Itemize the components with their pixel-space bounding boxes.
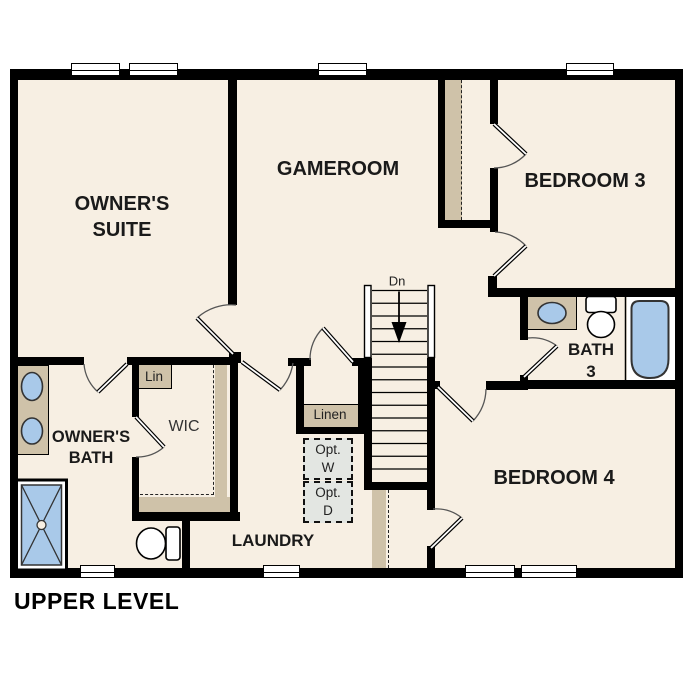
closet-label-linen: Linen: [313, 406, 346, 424]
stairs-down-label: Dn: [389, 274, 406, 289]
washer-label-line: Opt.: [315, 441, 341, 459]
room-label-gameroom: GAMEROOM: [277, 156, 399, 182]
room-label-bedroom-3: BEDROOM 3: [524, 168, 645, 194]
vanity-sink-icon: [22, 373, 43, 445]
door-owners-bath: [84, 364, 127, 392]
optional-dryer-label: Opt. D: [315, 484, 341, 520]
toilet-icon: [586, 297, 616, 338]
shower-icon: [17, 480, 67, 570]
dryer-label-line: Opt.: [315, 484, 341, 502]
room-label-line: BATH: [568, 339, 614, 361]
bath3-sink-icon: [538, 303, 566, 324]
door-bedroom3-upper: [494, 124, 526, 168]
room-label-line: 3: [568, 361, 614, 383]
room-label-line: SUITE: [75, 217, 170, 243]
door-hall: [242, 362, 293, 390]
door-bath3: [524, 338, 557, 377]
room-label-line: OWNER'S: [75, 191, 170, 217]
door-bedroom4: [438, 387, 486, 421]
room-label-owners-bath: OWNER'S BATH: [52, 427, 130, 469]
page-title: UPPER LEVEL: [14, 588, 179, 615]
stairs-down-arrow: [392, 292, 407, 344]
room-label-owners-suite: OWNER'S SUITE: [75, 191, 170, 243]
stair-rail: [428, 286, 435, 358]
stairs: [365, 286, 435, 470]
room-label-bedroom-4: BEDROOM 4: [493, 465, 614, 491]
door-bedroom4-closet: [431, 509, 462, 548]
washer-label-line: W: [315, 459, 341, 477]
room-label-bath-3: BATH 3: [568, 339, 614, 383]
bathtub-icon: [626, 297, 669, 389]
optional-washer-label: Opt. W: [315, 441, 341, 477]
door-wic: [136, 417, 164, 457]
closet-label-lin: Lin: [145, 368, 163, 386]
stair-rail: [365, 286, 372, 358]
room-label-line: BATH: [52, 448, 130, 469]
dryer-label-line: D: [315, 502, 341, 520]
door-linen: [310, 328, 353, 362]
room-label-wic: WIC: [168, 418, 199, 436]
door-owners-suite: [197, 305, 236, 354]
toilet-icon: [137, 527, 181, 560]
room-label-line: OWNER'S: [52, 427, 130, 448]
door-bedroom3-lower: [494, 232, 526, 276]
floor-plan: OWNER'S SUITE GAMEROOM BEDROOM 3 BEDROOM…: [0, 0, 687, 687]
room-label-laundry: LAUNDRY: [232, 530, 314, 552]
